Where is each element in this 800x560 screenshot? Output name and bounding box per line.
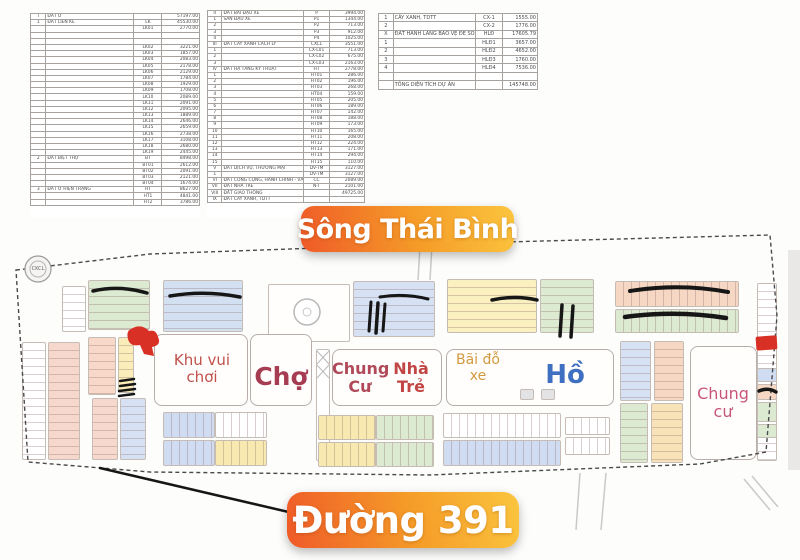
- table-row: 4HLĐ47536.00: [379, 64, 538, 72]
- lot-strip-salmon: [654, 341, 684, 401]
- lot-block: [565, 417, 610, 435]
- lot-block-green: [376, 442, 434, 467]
- table-cell: 4652.00: [502, 47, 537, 55]
- table-row: HT23786.00: [31, 199, 200, 205]
- apartment-right-label: Chung cư: [692, 385, 754, 421]
- lot-block-yellow: [318, 415, 376, 440]
- lot-block-yellow: [447, 279, 537, 333]
- table-row: 1CÂY XANH, TDTTCX-11555.00: [379, 14, 538, 22]
- lot-block: [215, 412, 267, 438]
- table-cell: ĐẤT CÔNG CỘNG, HÀNH CHÍNH - VĂN HÓA: [222, 178, 304, 184]
- lot-strip-yellow: [118, 337, 134, 393]
- edge-lot-blue: [757, 368, 777, 382]
- edge-lot-green: [757, 424, 777, 438]
- table-cell: 2: [379, 22, 394, 30]
- parking-lot-chip: [541, 389, 555, 400]
- table-cell: [393, 64, 476, 72]
- table-row: XĐẤT HÀNH LANG BẢO VỆ ĐÊ SÔNGHLĐ17605.79: [379, 30, 538, 38]
- table-cell: TỔNG DIỆN TÍCH DỰ ÁN: [393, 81, 476, 89]
- table-cell: CX-2: [476, 22, 502, 30]
- table-cell: 7536.00: [502, 64, 537, 72]
- table-cell: 3786.00: [162, 199, 200, 205]
- lot-strip-blue: [120, 398, 146, 460]
- table-cell: IX: [208, 196, 222, 202]
- road-banner: Đường 391: [287, 492, 519, 548]
- lot-block: [62, 286, 86, 332]
- table-cell: 1776.00: [502, 22, 537, 30]
- land-use-table-right: 1CÂY XANH, TDTTCX-11555.002CX-21776.00XĐ…: [378, 13, 538, 91]
- table-cell: 1: [379, 14, 394, 22]
- table-cell: [393, 47, 476, 55]
- lot-strip: [22, 342, 46, 460]
- table-row: 2HLĐ24652.00: [379, 47, 538, 55]
- edge-lot-green: [757, 402, 777, 422]
- photo-edge-shade: [788, 250, 800, 470]
- river-banner: Sông Thái Bình: [301, 206, 514, 252]
- table-cell: 145748.00: [502, 81, 537, 89]
- lot-block-green: [88, 280, 150, 330]
- table-row: 2CX-21776.00: [379, 22, 538, 30]
- lake-label: Hồ: [535, 360, 595, 390]
- table-row: TỔNG DIỆN TÍCH DỰ ÁN145748.00: [379, 81, 538, 89]
- parking-label: Bãi đỗ xe: [448, 352, 508, 384]
- table-cell: [393, 22, 476, 30]
- planning-map-photo: { "banners": { "river": "Sông Thái Bình"…: [0, 0, 800, 560]
- table-cell: CX-1: [476, 14, 502, 22]
- table-cell: HLĐ2: [476, 47, 502, 55]
- table-cell: HT2: [134, 199, 162, 205]
- table-cell: [31, 199, 46, 205]
- lot-block-blue: [163, 280, 243, 332]
- kindergarten-label: Nhà Trẻ: [386, 360, 436, 396]
- lot-strip-salmon: [88, 337, 116, 395]
- lot-block-salmon: [615, 281, 739, 307]
- table-cell: [393, 39, 476, 47]
- lot-strip-green: [620, 403, 648, 463]
- lot-block-blue: [353, 281, 435, 337]
- lot-block-green: [615, 309, 739, 333]
- table-cell: [393, 72, 476, 80]
- lot-block-green: [376, 415, 434, 440]
- table-cell: [502, 72, 537, 80]
- table-cell: ĐẤT CÂY XANH, TDTT: [222, 196, 304, 202]
- lot-block-blue: [163, 412, 215, 438]
- table-cell: 3657.00: [502, 39, 537, 47]
- table-cell: HLĐ3: [476, 55, 502, 63]
- market-label: Chợ: [250, 362, 312, 391]
- lot-block: [565, 437, 610, 455]
- table-cell: HLĐ4: [476, 64, 502, 72]
- table-cell: [476, 81, 502, 89]
- table-cell: [330, 196, 365, 202]
- table-cell: [393, 55, 476, 63]
- lot-strip-pink: [48, 342, 80, 460]
- lot-block-yellow: [215, 440, 267, 466]
- table-cell: 4: [379, 64, 394, 72]
- table-cell: [46, 199, 134, 205]
- parking-lot-chip: [520, 389, 534, 400]
- lot-block-blue: [163, 440, 215, 466]
- land-use-table-middle: IIĐẤT BÃI ĐẬU XEP3994.001SÂN ĐẬU XEP1134…: [207, 10, 365, 218]
- lot-strip-pink: [92, 398, 118, 460]
- lot-block-yellow: [318, 442, 376, 467]
- table-cell: [476, 72, 502, 80]
- lot-block: [443, 413, 561, 438]
- table-row: 3HLĐ31760.00: [379, 55, 538, 63]
- river-banner-label: Sông Thái Bình: [297, 214, 519, 245]
- table-cell: ĐẤT HÀNH LANG BẢO VỆ ĐÊ SÔNG: [393, 30, 476, 38]
- land-use-table-left: IĐẤT Ở57197.001ĐẤT LIỀN KỀLK45530.00LK01…: [30, 13, 200, 218]
- table-row: IXĐẤT CÂY XANH, TDTT: [208, 196, 365, 202]
- table-cell: CÂY XANH, TDTT: [393, 14, 476, 22]
- table-cell: 1: [379, 39, 394, 47]
- table-cell: 3: [379, 55, 394, 63]
- playground-label: Khu vui chơi: [158, 352, 246, 386]
- table-cell: 1555.00: [502, 14, 537, 22]
- table-cell: HLĐ: [476, 30, 502, 38]
- table-cell: [379, 72, 394, 80]
- table-cell: HLĐ1: [476, 39, 502, 47]
- table-row: [379, 72, 538, 80]
- logo-label: CKCL: [26, 266, 50, 272]
- edge-lot-salmon: [757, 384, 777, 400]
- table-cell: [303, 196, 329, 202]
- table-cell: X: [379, 30, 394, 38]
- table-cell: 1760.00: [502, 55, 537, 63]
- lot-block-blue: [443, 440, 561, 466]
- lot-strip-blue: [620, 341, 651, 401]
- lot-block-green: [540, 279, 594, 333]
- table-cell: [379, 81, 394, 89]
- table-cell: 2: [379, 47, 394, 55]
- apartment-center-label: Chung Cư: [332, 360, 388, 396]
- table-row: 1HLĐ13657.00: [379, 39, 538, 47]
- lot-strip-yellow: [651, 403, 683, 463]
- road-banner-label: Đường 391: [292, 499, 513, 542]
- table-cell: 17605.79: [502, 30, 537, 38]
